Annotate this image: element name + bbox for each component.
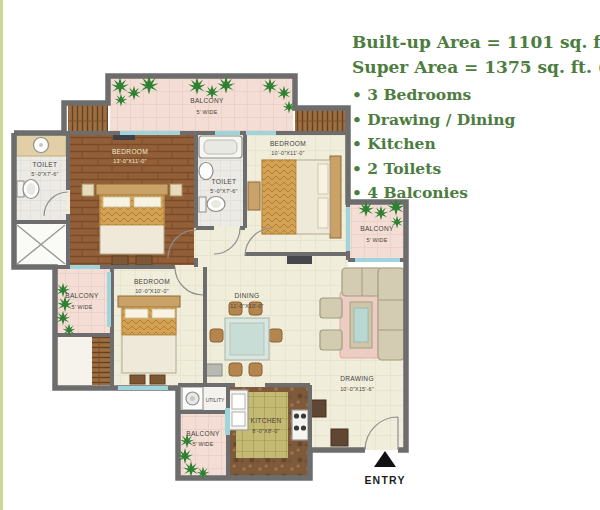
kitchen-size: 8'-0"X8'-0" [252, 428, 279, 434]
kitchen-label: KITCHEN [250, 417, 281, 424]
cabinet [206, 364, 222, 376]
balcony-left-label: BALCONY [65, 292, 99, 299]
info-panel: Built-up Area = 1101 sq. ft. Super Area … [352, 30, 598, 206]
drawing-label: DRAWING [340, 375, 374, 382]
entry-label: ENTRY [364, 474, 405, 486]
wardrobe-bedroom3 [92, 337, 112, 385]
armchair [320, 298, 342, 318]
entry-marker: ENTRY [364, 451, 405, 486]
balcony-bottom-label: BALCONY [186, 430, 220, 437]
wc-icon [199, 197, 206, 212]
feature-item: Kitchen [352, 132, 598, 157]
balcony-right-label: BALCONY [360, 225, 394, 232]
bedroom2-bed [248, 156, 341, 238]
toilet1-size: 5'-0"X7'-6" [31, 171, 58, 177]
balcony-top-size: 5' WIDE [197, 109, 218, 115]
balcony-left-size: 5' WIDE [72, 304, 93, 310]
basin-icon [199, 163, 213, 180]
bedroom3-bed [118, 296, 180, 384]
master-bedroom-label: BEDROOM [112, 148, 148, 155]
toilet1-label: TOILET [33, 161, 58, 168]
feature-item: Drawing / Dining [352, 108, 598, 133]
dining-label: DINING [235, 292, 260, 299]
balcony-bottom-size: 5' WIDE [193, 441, 214, 447]
wardrobe-bedroom2 [295, 110, 346, 131]
utility-label: UTILITY [206, 397, 225, 403]
built-up-area-text: Built-up Area = 1101 sq. ft. [352, 30, 598, 55]
drawing-size: 10'-0"X15'-6" [340, 386, 374, 392]
bedroom3-label: BEDROOM [134, 278, 170, 285]
armchair [320, 330, 342, 350]
tv-unit-icon [287, 255, 312, 264]
dresser-icon [248, 182, 260, 210]
toilet2-label: TOILET [212, 178, 237, 185]
utility-fixtures [182, 387, 203, 410]
stool [310, 400, 326, 417]
feature-item: 3 Bedrooms [352, 83, 598, 108]
toilet2-size: 5'-0"X7'-6" [210, 188, 237, 194]
super-area-text: Super Area = 1375 sq. ft. ( Type-A ) [352, 55, 598, 80]
wardrobe-master [68, 105, 108, 131]
stool [331, 429, 348, 446]
feature-item: 4 Balconies [352, 181, 598, 206]
feature-list: 3 Bedrooms Drawing / Dining Kitchen 2 To… [352, 83, 598, 206]
floor-plan-page: BALCONY 5' WIDE BEDROOM 13'-0"X11'-0" TO… [0, 0, 600, 510]
bedroom3-size: 10'-0"X10'-0" [135, 288, 169, 294]
bedroom2-label: BEDROOM [270, 140, 306, 147]
master-bedroom-size: 13'-0"X11'-0" [113, 158, 146, 164]
balcony-right-size: 5' WIDE [367, 237, 388, 243]
feature-item: 2 Toilets [352, 157, 598, 182]
entry-arrow-icon [374, 451, 396, 467]
bedroom2-size: 10'-0"X11'-0" [271, 150, 304, 156]
dining-size: 11'-0"X10'-0" [230, 303, 263, 309]
balcony-top-label: BALCONY [190, 97, 224, 104]
balcony-glass-door [225, 408, 230, 435]
